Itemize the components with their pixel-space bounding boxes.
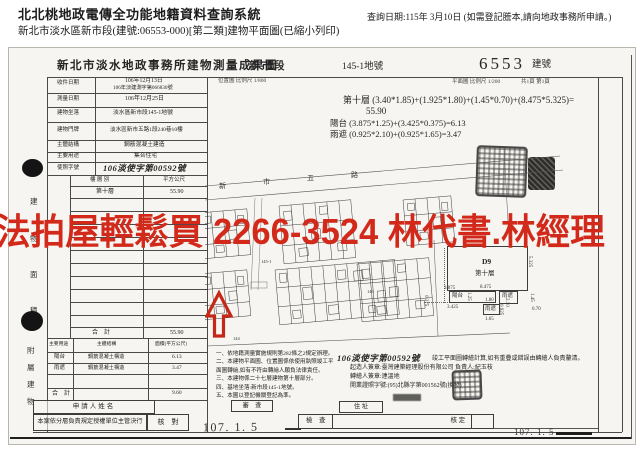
annex-total-area: 9.60 bbox=[172, 391, 182, 397]
inspect-label: 檢 查 bbox=[306, 418, 326, 425]
road-char: 五 bbox=[307, 174, 314, 182]
drafter-line: 轉繪人簽章:連溫地 bbox=[350, 374, 400, 380]
survey-title: 新北市淡水地政事務所建物測量成果圖 bbox=[57, 61, 278, 73]
note-item: 一、依地籍測量實施規則第282條之2規定辦理。 bbox=[216, 350, 338, 358]
annex-area: 3.47 bbox=[172, 366, 182, 372]
dim-balcony-w2: 3.425 bbox=[447, 305, 458, 310]
handwritten-date-right: 107. 1. 5 bbox=[514, 428, 555, 437]
parcel-label: 144 bbox=[233, 336, 241, 341]
row-line bbox=[70, 276, 207, 277]
authorize-box: 本案依分層負責規定授權單位主管決行 bbox=[33, 414, 147, 431]
row-line bbox=[70, 263, 207, 264]
area-cell: 55.90 bbox=[170, 189, 184, 195]
note-item: 四、基地坐落:新市段145-1地號。 bbox=[216, 384, 338, 392]
info-value: 106年12月13日 bbox=[125, 79, 163, 85]
info-label: 建物門牌 bbox=[57, 128, 79, 134]
label-col-divider bbox=[95, 77, 96, 175]
frame-right bbox=[622, 77, 623, 432]
sheet-bottom-edge bbox=[10, 437, 632, 439]
parcel-label: 145-1 bbox=[261, 259, 272, 264]
section-name: 新市段 bbox=[249, 62, 287, 73]
info-value: 106年淡建測字第066830號 bbox=[113, 86, 173, 91]
info-value: 鋼筋混凝土建造 bbox=[124, 143, 165, 149]
query-date: 查詢日期:115年 3月10日 (如需登記謄本,請向地政事務所申請。) bbox=[367, 13, 611, 22]
inspect-approve-row: 檢 查 核 定 bbox=[298, 414, 494, 429]
row-line bbox=[47, 93, 207, 94]
info-label: 使照字號 bbox=[57, 166, 79, 172]
info-label: 主體結構 bbox=[57, 143, 79, 149]
document-subtitle: 新北市淡水區新市段(建號:06553-000)[第二類]建物平面圖(已縮小列印) bbox=[18, 27, 339, 38]
canopy2-label: 雨遮 bbox=[485, 307, 496, 313]
dash-mark bbox=[285, 428, 301, 430]
row-line bbox=[70, 289, 207, 290]
row-line bbox=[70, 198, 207, 199]
info-label: 測量日期 bbox=[57, 97, 79, 103]
check-box: 核 對 bbox=[147, 414, 189, 431]
authorize-label: 本案依分層負責規定授權單位主管決行 bbox=[37, 419, 142, 425]
system-title: 北北桃地政電傳全功能地籍資料查詢系統 bbox=[18, 8, 261, 21]
road-char: 路 bbox=[351, 170, 358, 179]
total-label: 合 計 bbox=[92, 330, 110, 336]
annex-struct: 鋼筋混凝土構造 bbox=[88, 355, 124, 360]
row-line bbox=[47, 140, 207, 141]
row-line bbox=[70, 327, 207, 328]
row-line bbox=[47, 122, 207, 123]
applicant-label: 申請人姓名 bbox=[73, 404, 116, 411]
dim-top: 8.475 bbox=[480, 285, 491, 290]
punch-hole bbox=[22, 159, 43, 177]
row-line bbox=[47, 363, 207, 364]
floor-col-divider bbox=[143, 175, 144, 338]
subject-arrow bbox=[207, 293, 231, 336]
annex-total-label: 合 計 bbox=[52, 391, 70, 397]
annex-col2 bbox=[148, 338, 149, 400]
note-item: 三、本建物係二十七層建物第十層部分。 bbox=[216, 375, 338, 383]
query-system-page: 北北桃地政電傳全功能地籍資料查詢系統 新北市淡水區新市段(建號:06553-00… bbox=[0, 0, 640, 453]
annex-col1 bbox=[73, 338, 74, 400]
row-line bbox=[70, 186, 207, 187]
col-header-area: 平方公尺 bbox=[163, 178, 185, 184]
annex-use: 雨遮 bbox=[54, 366, 65, 372]
row-line bbox=[47, 338, 207, 339]
applicant-name-box: 申請人姓名 bbox=[33, 400, 155, 414]
building-number: 6553 bbox=[479, 55, 525, 72]
col-header-floor: 樓 層 別 bbox=[90, 178, 109, 184]
check-label: 核 對 bbox=[158, 419, 179, 426]
row-line bbox=[47, 352, 207, 353]
info-label: 建物坐落 bbox=[57, 111, 79, 117]
auction-watermark: 法拍屋輕鬆買 2266-3524 林代書.林經理 bbox=[0, 203, 605, 255]
review-label: 審 查 bbox=[243, 403, 262, 409]
permit-text: 竣工平面圖轉繪計算,如有重疊或錯誤由轉繪人負責釐清。 bbox=[432, 356, 584, 362]
unit-label: D9 bbox=[482, 258, 491, 266]
dim-canopy2-d: 0.925 bbox=[498, 304, 503, 315]
building-number-label: 建號 bbox=[532, 61, 551, 71]
dim-canopy-right-w: 0.70 bbox=[532, 307, 541, 312]
address-label: 住 址 bbox=[354, 404, 368, 410]
row-line bbox=[47, 374, 207, 375]
dim-canopy2-w2: 1.65 bbox=[485, 317, 494, 322]
dim-canopy-right-h: 1.45 bbox=[529, 293, 534, 302]
row-line bbox=[70, 315, 207, 316]
floor-table-left bbox=[70, 175, 71, 338]
approve-label: 核 定 bbox=[451, 418, 466, 425]
side-label-char: 屬 bbox=[27, 362, 35, 373]
cell-divider bbox=[471, 414, 472, 429]
row-line bbox=[47, 107, 207, 108]
info-label: 主要用途 bbox=[57, 154, 79, 160]
dim-right: 5.325 bbox=[527, 256, 532, 267]
dim-balcony-side: 0.375 bbox=[423, 295, 428, 306]
side-label-char: 面 bbox=[30, 269, 38, 280]
annex-header-area: 面積(平方公尺) bbox=[155, 343, 187, 348]
detail-guide-v bbox=[444, 248, 445, 303]
notes-block: 一、依地籍測量實施規則第282條之2規定辦理。 二、本建物平面圖、位置圖係依使用… bbox=[216, 350, 338, 400]
review-box: 審 查 bbox=[231, 400, 273, 412]
side-label-char: 建 bbox=[27, 379, 35, 390]
license-line: 開業證照字號:(95)北縣字第001562號(換發) bbox=[350, 383, 462, 389]
side-label-char: 附 bbox=[27, 345, 35, 356]
annex-use: 陽台 bbox=[54, 355, 65, 361]
row-line bbox=[47, 388, 207, 389]
info-value: 淡水區新市五路1段240巷10樓 bbox=[110, 128, 183, 134]
annex-header-use: 主要用途 bbox=[49, 343, 68, 348]
row-line bbox=[70, 302, 207, 303]
balcony-label: 陽台 bbox=[452, 294, 463, 300]
dim-balcony-w1: 3.875 bbox=[444, 286, 455, 291]
annex-area: 6.13 bbox=[172, 355, 182, 361]
dim-balcony-depth: 1.25 bbox=[466, 292, 471, 301]
info-value: 集合住宅 bbox=[134, 154, 157, 160]
total-area: 55.90 bbox=[170, 330, 184, 336]
annex-struct: 鋼筋混凝土構造 bbox=[88, 366, 124, 371]
unit-floor-label: 第十層 bbox=[475, 271, 495, 278]
address-box: 住 址 bbox=[339, 401, 383, 413]
annex-header-struct: 主體結構 bbox=[97, 343, 116, 348]
dim-canopy1: 2.10 bbox=[504, 298, 509, 307]
info-value: 106年12月25日 bbox=[125, 96, 164, 102]
heavy-dash bbox=[556, 432, 592, 435]
dim-canopy2-w: 1.80 bbox=[485, 298, 494, 303]
permit-no: 106淡使字第00592號 bbox=[337, 354, 420, 363]
floor-cell: 第十層 bbox=[96, 189, 114, 195]
handwritten-date-left: 107. 1. 5 bbox=[203, 421, 259, 434]
info-value: 淡水區新市段145-1地號 bbox=[113, 111, 173, 117]
info-label: 收件日期 bbox=[57, 81, 79, 87]
smudge-mark bbox=[393, 394, 421, 401]
drafter-seal bbox=[451, 369, 482, 400]
punch-hole bbox=[21, 311, 43, 331]
row-line bbox=[47, 175, 207, 176]
cell-divider bbox=[332, 414, 333, 429]
sheet-right-edge bbox=[631, 55, 632, 439]
road-char: 市 bbox=[263, 177, 270, 186]
permit-number-value: 106淡使字第00592號 bbox=[103, 164, 186, 173]
note-item: 二、本建物平面圖、位置圖係依使用執照竣工平面圖轉繪,如有不符由轉繪人願負法律責任… bbox=[216, 358, 338, 375]
land-number: 145-1地號 bbox=[342, 63, 383, 73]
road-char: 新 bbox=[219, 181, 226, 190]
